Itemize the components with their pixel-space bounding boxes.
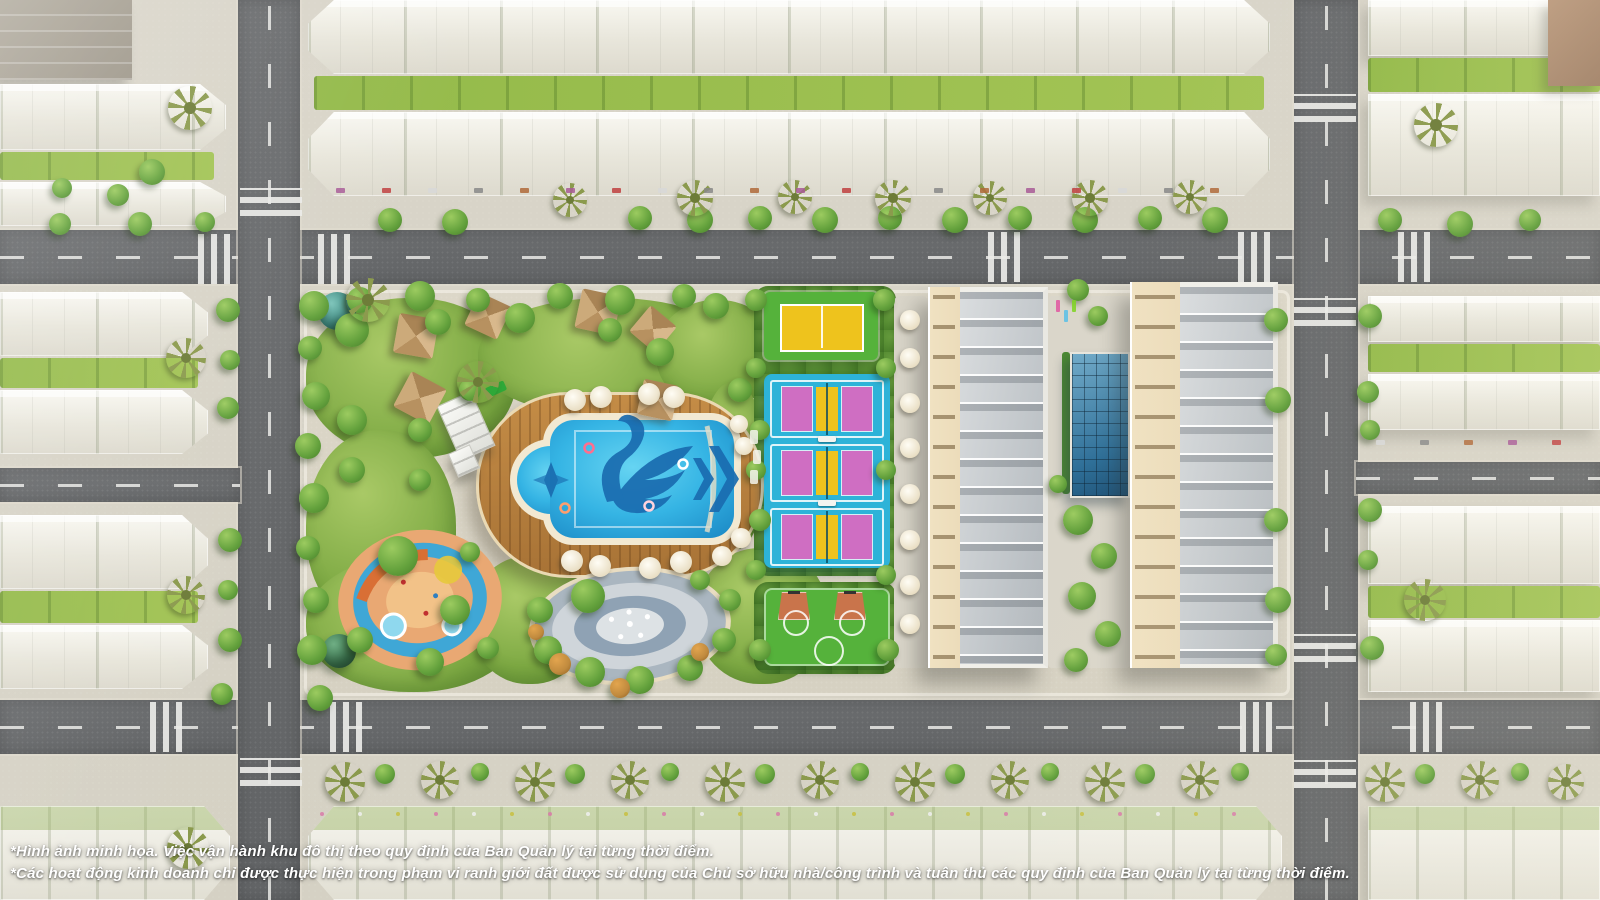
palm-tree: [346, 278, 390, 322]
tree: [339, 457, 365, 483]
flower-speck: [662, 812, 666, 816]
parked-car-speck: [1026, 188, 1035, 193]
tree: [378, 536, 418, 576]
tree: [216, 298, 240, 322]
tree: [876, 565, 896, 585]
crosswalk: [318, 234, 352, 284]
tree: [218, 628, 242, 652]
crosswalk: [198, 234, 232, 284]
parked-car-speck: [1464, 440, 1473, 445]
tree: [375, 764, 395, 784]
tree: [378, 208, 402, 232]
tree: [1067, 279, 1089, 301]
tree: [1231, 763, 1249, 781]
tree: [749, 639, 771, 661]
flower-speck: [320, 812, 324, 816]
palm-tree: [421, 761, 459, 799]
tree: [1041, 763, 1059, 781]
parked-car-speck: [1420, 440, 1429, 445]
disclaimer-line-2: *Các hoạt động kinh doanh chỉ được thực …: [10, 863, 1350, 885]
tree: [1135, 764, 1155, 784]
parked-car-speck: [1508, 440, 1517, 445]
tree: [298, 336, 322, 360]
tree: [1088, 306, 1108, 326]
parked-car-speck: [888, 188, 897, 193]
palm-tree: [515, 762, 555, 802]
tree: [672, 284, 696, 308]
tree: [466, 288, 490, 312]
palm-tree: [705, 762, 745, 802]
flower-speck: [1156, 812, 1160, 816]
tree: [728, 378, 752, 402]
tree: [296, 536, 320, 560]
tree: [107, 184, 129, 206]
tree: [1358, 304, 1382, 328]
flower-speck: [966, 812, 970, 816]
parasol-icon: [638, 383, 660, 405]
tree: [1358, 498, 1382, 522]
tree: [528, 624, 544, 640]
palm-tree: [1072, 180, 1108, 216]
parked-car-speck: [980, 188, 989, 193]
crosswalk: [1410, 702, 1444, 752]
parked-car-speck: [934, 188, 943, 193]
tree: [876, 358, 896, 378]
tree: [661, 763, 679, 781]
palm-tree: [1461, 761, 1499, 799]
disclaimer: *Hình ảnh minh họa. Việc vận hành khu đô…: [10, 841, 1350, 884]
parked-car-speck: [796, 188, 805, 193]
palm-tree: [1548, 764, 1584, 800]
parked-car-speck: [336, 188, 345, 193]
tree: [1264, 308, 1288, 332]
tree: [1360, 636, 1384, 660]
palm-tree: [457, 361, 499, 403]
parasol-icon: [731, 528, 751, 548]
tree: [745, 289, 767, 311]
flower-speck: [700, 812, 704, 816]
palm-tree: [168, 86, 212, 130]
palm-tree: [1085, 762, 1125, 802]
parked-car-speck: [382, 188, 391, 193]
tree: [748, 206, 772, 230]
lounge-chair: [750, 430, 758, 444]
palm-tree: [778, 180, 812, 214]
tree: [1049, 475, 1067, 493]
parasol-icon: [561, 550, 583, 572]
crosswalk: [1294, 760, 1356, 788]
tree: [628, 206, 652, 230]
tree: [646, 338, 674, 366]
flower-speck: [1080, 812, 1084, 816]
crosswalk: [240, 758, 302, 786]
flower-speck: [852, 812, 856, 816]
decoration-layer: [0, 0, 1600, 900]
tree: [571, 579, 605, 613]
parked-car-speck: [428, 188, 437, 193]
parked-car-speck: [1072, 188, 1081, 193]
tree: [1265, 587, 1291, 613]
tree: [812, 207, 838, 233]
parked-car-speck: [1210, 188, 1219, 193]
parasol-icon: [900, 575, 920, 595]
parasol-icon: [639, 557, 661, 579]
tree: [1357, 381, 1379, 403]
tree: [719, 589, 741, 611]
crosswalk: [1240, 702, 1274, 752]
tree: [218, 528, 242, 552]
parasol-icon: [730, 415, 748, 433]
tree: [598, 318, 622, 342]
tree: [1264, 508, 1288, 532]
tree: [703, 293, 729, 319]
flower-speck: [472, 812, 476, 816]
tree: [347, 627, 373, 653]
parked-car-speck: [612, 188, 621, 193]
tree: [1447, 211, 1473, 237]
tree: [211, 683, 233, 705]
tree: [1068, 582, 1096, 610]
tree: [1064, 648, 1088, 672]
flower-speck: [1042, 812, 1046, 816]
parked-car-speck: [474, 188, 483, 193]
flower-speck: [510, 812, 514, 816]
parked-car-speck: [566, 188, 575, 193]
tree: [873, 289, 895, 311]
tree: [877, 639, 899, 661]
parked-car-speck: [1376, 440, 1385, 445]
flower-speck: [1004, 812, 1008, 816]
palm-tree: [167, 576, 205, 614]
flower-speck: [396, 812, 400, 816]
palm-tree: [973, 181, 1007, 215]
tree: [1265, 387, 1291, 413]
parked-car-speck: [658, 188, 667, 193]
flower-speck: [928, 812, 932, 816]
parked-car-speck: [842, 188, 851, 193]
parasol-icon: [590, 386, 612, 408]
flower-speck: [738, 812, 742, 816]
tree: [876, 460, 896, 480]
tree: [128, 212, 152, 236]
tree: [460, 542, 480, 562]
play-equipment: [1072, 300, 1076, 312]
tree: [471, 763, 489, 781]
tree: [299, 291, 329, 321]
tree: [299, 483, 329, 513]
palm-tree: [1414, 103, 1458, 147]
tree: [217, 397, 239, 419]
parasol-icon: [900, 348, 920, 368]
tree: [337, 405, 367, 435]
tree: [139, 159, 165, 185]
parked-car-speck: [704, 188, 713, 193]
tree: [49, 213, 71, 235]
flower-speck: [1232, 812, 1236, 816]
crosswalk: [240, 188, 302, 216]
tree: [295, 433, 321, 459]
parasol-icon: [663, 386, 685, 408]
tree: [1415, 764, 1435, 784]
tree: [1095, 621, 1121, 647]
tree: [547, 283, 573, 309]
palm-tree: [1181, 761, 1219, 799]
aerial-render: *Hình ảnh minh họa. Việc vận hành khu đô…: [0, 0, 1600, 900]
tree: [1378, 208, 1402, 232]
tree: [626, 666, 654, 694]
tree: [746, 560, 766, 580]
tree: [442, 209, 468, 235]
tree: [851, 763, 869, 781]
flower-speck: [1194, 812, 1198, 816]
palm-tree: [611, 761, 649, 799]
play-equipment: [1064, 310, 1068, 322]
tree: [610, 678, 630, 698]
lounge-chair: [750, 470, 758, 484]
tree: [1265, 644, 1287, 666]
flower-speck: [624, 812, 628, 816]
tree: [477, 637, 499, 659]
parasol-icon: [900, 310, 920, 330]
parasol-icon: [670, 551, 692, 573]
tree: [1138, 206, 1162, 230]
gazebo-roof: [393, 371, 447, 425]
play-equipment: [1056, 300, 1060, 312]
disclaimer-line-1: *Hình ảnh minh họa. Việc vận hành khu đô…: [10, 841, 1350, 863]
palm-tree: [1365, 762, 1405, 802]
tree: [755, 764, 775, 784]
tree: [307, 685, 333, 711]
tree: [942, 207, 968, 233]
crosswalk: [1398, 232, 1432, 282]
tree: [297, 635, 327, 665]
crosswalk: [150, 702, 184, 752]
tree: [691, 643, 709, 661]
parked-car-speck: [750, 188, 759, 193]
palm-tree: [1404, 579, 1446, 621]
tree: [440, 595, 470, 625]
palm-tree: [991, 761, 1029, 799]
parasol-icon: [589, 555, 611, 577]
tree: [749, 509, 771, 531]
tree: [1360, 420, 1380, 440]
tree: [416, 648, 444, 676]
parasol-icon: [900, 614, 920, 634]
tree: [690, 570, 710, 590]
tree: [1358, 550, 1378, 570]
tree: [575, 657, 605, 687]
tree: [1519, 209, 1541, 231]
flower-speck: [548, 812, 552, 816]
flower-speck: [434, 812, 438, 816]
lounge-chair: [753, 450, 761, 464]
flower-speck: [890, 812, 894, 816]
tree: [945, 764, 965, 784]
crosswalk: [988, 232, 1022, 282]
parked-car-speck: [1164, 188, 1173, 193]
tree: [302, 382, 330, 410]
flower-speck: [814, 812, 818, 816]
palm-tree: [166, 338, 206, 378]
tree: [405, 281, 435, 311]
flower-speck: [586, 812, 590, 816]
crosswalk: [1238, 232, 1272, 282]
tree: [1091, 543, 1117, 569]
parasol-icon: [712, 546, 732, 566]
parasol-icon: [900, 393, 920, 413]
parasol-icon: [900, 484, 920, 504]
tree: [1511, 763, 1529, 781]
tree: [408, 418, 432, 442]
tree: [746, 358, 766, 378]
parasol-icon: [900, 438, 920, 458]
flower-speck: [776, 812, 780, 816]
tree: [1063, 505, 1093, 535]
palm-tree: [1173, 180, 1207, 214]
palm-tree: [801, 761, 839, 799]
tree: [425, 309, 451, 335]
crosswalk: [1294, 634, 1356, 662]
palm-tree: [895, 762, 935, 802]
palm-tree: [325, 762, 365, 802]
tree: [303, 587, 329, 613]
tree: [409, 469, 431, 491]
tree: [220, 350, 240, 370]
tree: [712, 628, 736, 652]
palm-tree: [875, 180, 911, 216]
tree: [565, 764, 585, 784]
tree: [1202, 207, 1228, 233]
palm-tree: [677, 180, 713, 216]
tree: [52, 178, 72, 198]
parasol-icon: [564, 389, 586, 411]
tree: [605, 285, 635, 315]
parked-car-speck: [520, 188, 529, 193]
tree: [505, 303, 535, 333]
tree: [1008, 206, 1032, 230]
flower-speck: [358, 812, 362, 816]
crosswalk: [1294, 94, 1356, 122]
tree: [527, 597, 553, 623]
tree: [218, 580, 238, 600]
tree: [549, 653, 571, 675]
crosswalk: [330, 702, 364, 752]
flower-speck: [1118, 812, 1122, 816]
tree: [195, 212, 215, 232]
parked-car-speck: [1118, 188, 1127, 193]
parasol-icon: [900, 530, 920, 550]
crosswalk: [1294, 298, 1356, 326]
parked-car-speck: [1552, 440, 1561, 445]
